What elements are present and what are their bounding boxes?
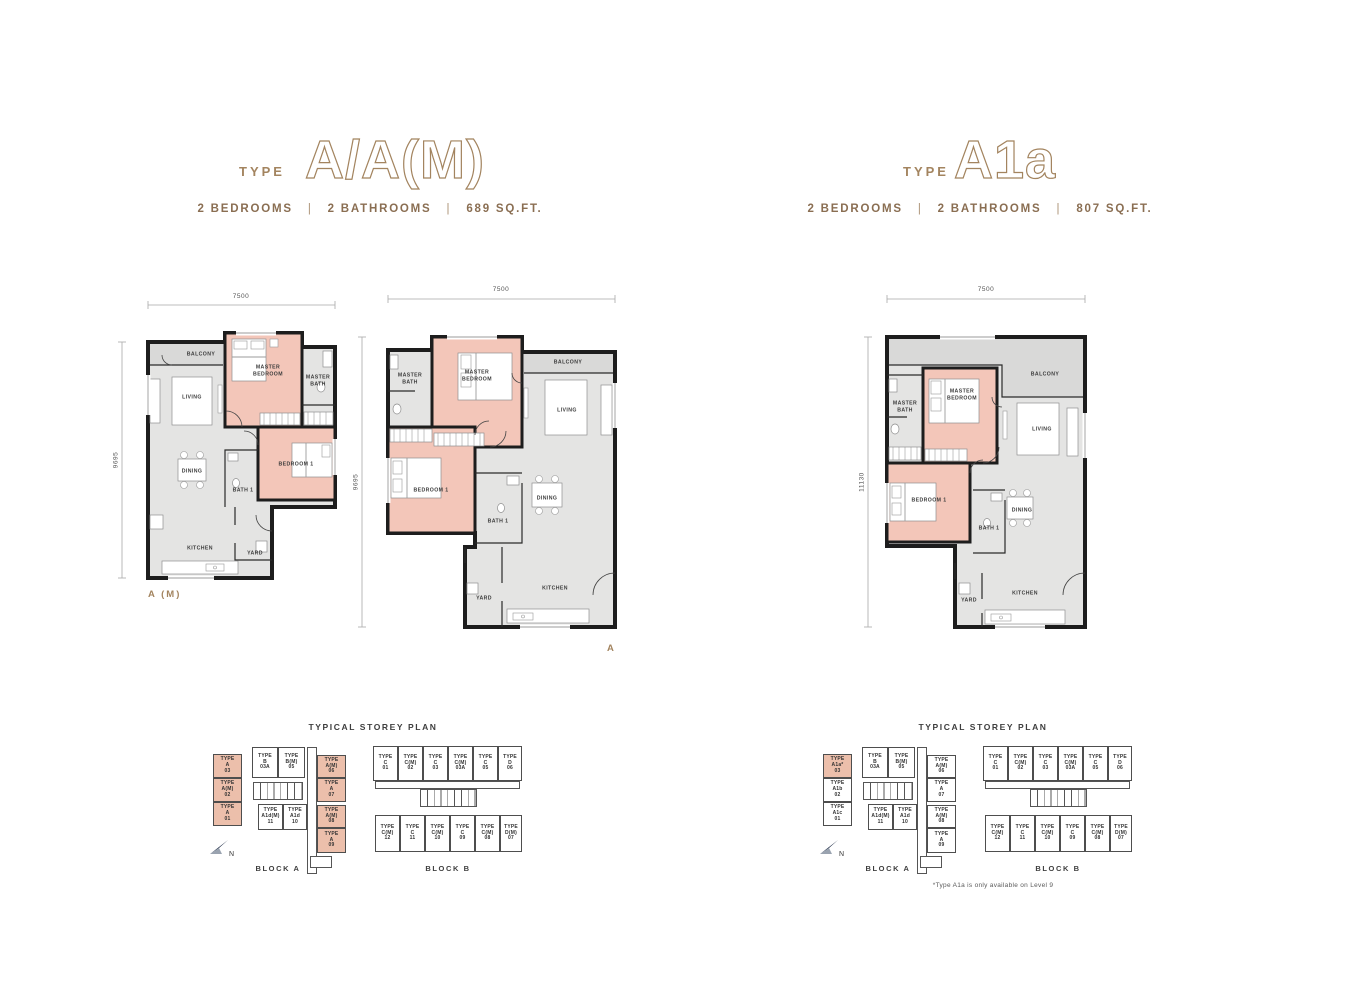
left-bathrooms: 2 BATHROOMS — [328, 203, 432, 215]
block-b-label: BLOCK B — [403, 864, 493, 873]
unit-a1d-10: TYPE A1d 10 — [893, 804, 917, 830]
room-label-master-bath: MASTER BATH — [306, 374, 330, 388]
north-label: N — [229, 851, 234, 858]
room-label-dining: DINING — [182, 469, 203, 476]
unit-b-03a: TYPE B 03A — [252, 747, 278, 778]
unit-c-01: TYPE C 01 — [373, 746, 398, 781]
right-type-word: TYPE — [903, 164, 949, 190]
right-unit-header: TYPE A1a 2 BEDROOMS|2 BATHROOMS|807 SQ.F… — [770, 126, 1190, 215]
typical-storey-plan-left: TYPICAL STOREY PLAN TYPE A 03 TYPE A(M) … — [178, 716, 568, 894]
left-area: 689 SQ.FT. — [466, 203, 542, 215]
unit-c-05: TYPE C 05 — [1083, 746, 1108, 781]
wardrobe-icon — [260, 412, 333, 425]
right-specs: 2 BEDROOMS|2 BATHROOMS|807 SQ.FT. — [770, 203, 1190, 215]
right-type-name-text: A1a — [954, 130, 1056, 190]
separator: | — [918, 203, 923, 215]
room-label-bath1: BATH 1 — [488, 519, 509, 526]
left-specs: 2 BEDROOMS|2 BATHROOMS|689 SQ.FT. — [160, 203, 580, 215]
unit-cm-02: TYPE C(M) 02 — [398, 746, 423, 781]
unit-a-07: TYPE A 07 — [317, 778, 346, 802]
room-label-bedroom1: BEDROOM 1 — [278, 462, 313, 469]
width-dimension: 7500 — [493, 286, 509, 293]
unit-dm-07: TYPE D(M) 07 — [500, 815, 522, 852]
block-a-label: BLOCK A — [843, 864, 933, 873]
block-a-label: BLOCK A — [233, 864, 323, 873]
storey-plan-title: TYPICAL STOREY PLAN — [178, 722, 568, 732]
room-label-living: LIVING — [182, 395, 202, 402]
unit-d-06: TYPE D 06 — [498, 746, 522, 781]
plan-variant-label-a: A — [607, 643, 616, 654]
unit-cm-08: TYPE C(M) 08 — [475, 815, 500, 852]
north-arrow-icon: N — [818, 838, 848, 858]
unit-c-11: TYPE C 11 — [1010, 815, 1035, 852]
corridor-bar — [985, 781, 1130, 789]
room-label-bedroom1: BEDROOM 1 — [911, 498, 946, 505]
unit-cm-03a: TYPE C(M) 03A — [1058, 746, 1083, 781]
corridor-bar — [917, 747, 927, 874]
corridor-bar — [307, 747, 317, 874]
floor-plan-a-m-drawing — [110, 293, 355, 608]
room-label-balcony: BALCONY — [187, 352, 215, 359]
lift-core — [253, 782, 303, 800]
unit-a1c-01: TYPE A1c 01 — [823, 802, 852, 826]
unit-cm-03a: TYPE C(M) 03A — [448, 746, 473, 781]
unit-cm-08: TYPE C(M) 08 — [1085, 815, 1110, 852]
unit-c-11: TYPE C 11 — [400, 815, 425, 852]
unit-c-03: TYPE C 03 — [423, 746, 448, 781]
right-bathrooms: 2 BATHROOMS — [938, 203, 1042, 215]
floor-plan-a-drawing — [355, 283, 660, 673]
room-label-bath1: BATH 1 — [233, 488, 254, 495]
unit-a-01: TYPE A 01 — [213, 802, 242, 826]
unit-a-09: TYPE A 09 — [317, 828, 346, 853]
unit-am-06: TYPE A(M) 06 — [317, 755, 346, 778]
separator: | — [447, 203, 452, 215]
floor-plan-brochure-page: TYPE A/A(M) 2 BEDROOMS|2 BATHROOMS|689 S… — [0, 0, 1349, 990]
unit-a1dm-11: TYPE A1d(M) 11 — [868, 804, 893, 830]
unit-cm-02: TYPE C(M) 02 — [1008, 746, 1033, 781]
unit-cm-12: TYPE C(M) 12 — [375, 815, 400, 852]
right-type-name-outline: A1a — [953, 128, 1057, 190]
room-label-master-bath: MASTER BATH — [893, 400, 917, 414]
room-label-kitchen: KITCHEN — [542, 586, 568, 593]
unit-a1b-02: TYPE A1b 02 — [823, 778, 852, 802]
room-label-master-bedroom: MASTER BEDROOM — [947, 388, 977, 402]
height-dimension: 9695 — [113, 452, 120, 468]
left-type-name-text: A/A(M) — [305, 130, 485, 190]
unit-c-09: TYPE C 09 — [450, 815, 475, 852]
room-label-yard: YARD — [476, 596, 492, 603]
unit-am-08: TYPE A(M) 08 — [317, 805, 346, 828]
unit-b-03a: TYPE B 03A — [862, 747, 888, 778]
unit-c-01: TYPE C 01 — [983, 746, 1008, 781]
storey-plan-title: TYPICAL STOREY PLAN — [788, 722, 1178, 732]
width-dimension: 7500 — [233, 293, 249, 300]
room-label-master-bath: MASTER BATH — [398, 372, 422, 386]
floor-plan-a1a: 7500 11130 BALCONY MASTER BEDROOM MASTER… — [845, 283, 1110, 658]
left-bedrooms: 2 BEDROOMS — [197, 203, 292, 215]
unit-am-08: TYPE A(M) 08 — [927, 805, 956, 828]
room-label-dining: DINING — [537, 496, 558, 503]
room-label-master-bedroom: MASTER BEDROOM — [462, 369, 492, 383]
unit-a-03: TYPE A 03 — [213, 754, 242, 778]
floor-plan-a-m: 7500 9695 BALCONY LIVING MASTER BEDROOM … — [110, 293, 355, 608]
unit-cm-12: TYPE C(M) 12 — [985, 815, 1010, 852]
typical-storey-plan-right: TYPICAL STOREY PLAN TYPE A1a* 03 TYPE A1… — [788, 716, 1178, 894]
unit-bm-05: TYPE B(M) 05 — [888, 747, 915, 778]
bed-icon — [292, 443, 332, 477]
block-b-label: BLOCK B — [1013, 864, 1103, 873]
unit-a1d-10: TYPE A1d 10 — [283, 804, 307, 830]
unit-c-09: TYPE C 09 — [1060, 815, 1085, 852]
left-type-name-outline: A/A(M) — [289, 128, 501, 190]
north-arrow-icon: N — [208, 838, 238, 858]
room-label-kitchen: KITCHEN — [187, 546, 213, 553]
plan-variant-label-am: A (M) — [148, 589, 181, 600]
unit-a1a-03: TYPE A1a* 03 — [823, 754, 852, 778]
unit-cm-10: TYPE C(M) 10 — [1035, 815, 1060, 852]
availability-footnote: *Type A1a is only available on Level 9 — [828, 882, 1158, 889]
room-label-bedroom1: BEDROOM 1 — [413, 488, 448, 495]
unit-d-06: TYPE D 06 — [1108, 746, 1132, 781]
room-label-balcony: BALCONY — [1031, 372, 1059, 379]
wardrobe-icon — [889, 447, 967, 461]
unit-am-06: TYPE A(M) 06 — [927, 755, 956, 778]
unit-c-05: TYPE C 05 — [473, 746, 498, 781]
left-title-row: TYPE A/A(M) — [160, 126, 580, 190]
right-area: 807 SQ.FT. — [1076, 203, 1152, 215]
separator: | — [1057, 203, 1062, 215]
unit-a-09: TYPE A 09 — [927, 828, 956, 853]
room-label-bath1: BATH 1 — [979, 526, 1000, 533]
corridor-bar — [375, 781, 520, 789]
unit-a1dm-11: TYPE A1d(M) 11 — [258, 804, 283, 830]
room-label-dining: DINING — [1012, 508, 1033, 515]
left-unit-header: TYPE A/A(M) 2 BEDROOMS|2 BATHROOMS|689 S… — [160, 126, 580, 215]
right-title-row: TYPE A1a — [770, 126, 1190, 190]
height-dimension: 9695 — [353, 474, 360, 490]
room-label-yard: YARD — [961, 598, 977, 605]
floor-plan-a: 7500 9695 MASTER BATH MASTER BEDROOM BAL… — [355, 283, 660, 673]
unit-am-02: TYPE A(M) 02 — [213, 778, 242, 802]
unit-a-07: TYPE A 07 — [927, 778, 956, 802]
north-label: N — [839, 851, 844, 858]
floor-plan-a1a-drawing — [845, 283, 1110, 658]
room-label-balcony: BALCONY — [554, 360, 582, 367]
room-label-yard: YARD — [247, 551, 263, 558]
unit-cm-10: TYPE C(M) 10 — [425, 815, 450, 852]
lift-core — [863, 782, 913, 800]
width-dimension: 7500 — [978, 286, 994, 293]
lift-core — [420, 789, 477, 807]
room-label-living: LIVING — [1032, 427, 1052, 434]
room-label-living: LIVING — [557, 408, 577, 415]
unit-c-03: TYPE C 03 — [1033, 746, 1058, 781]
lift-core — [1030, 789, 1087, 807]
separator: | — [308, 203, 313, 215]
room-label-kitchen: KITCHEN — [1012, 591, 1038, 598]
left-type-word: TYPE — [239, 164, 285, 190]
height-dimension: 11130 — [859, 472, 866, 492]
unit-dm-07: TYPE D(M) 07 — [1110, 815, 1132, 852]
right-bedrooms: 2 BEDROOMS — [807, 203, 902, 215]
unit-bm-05: TYPE B(M) 05 — [278, 747, 305, 778]
room-label-master-bedroom: MASTER BEDROOM — [253, 364, 283, 378]
